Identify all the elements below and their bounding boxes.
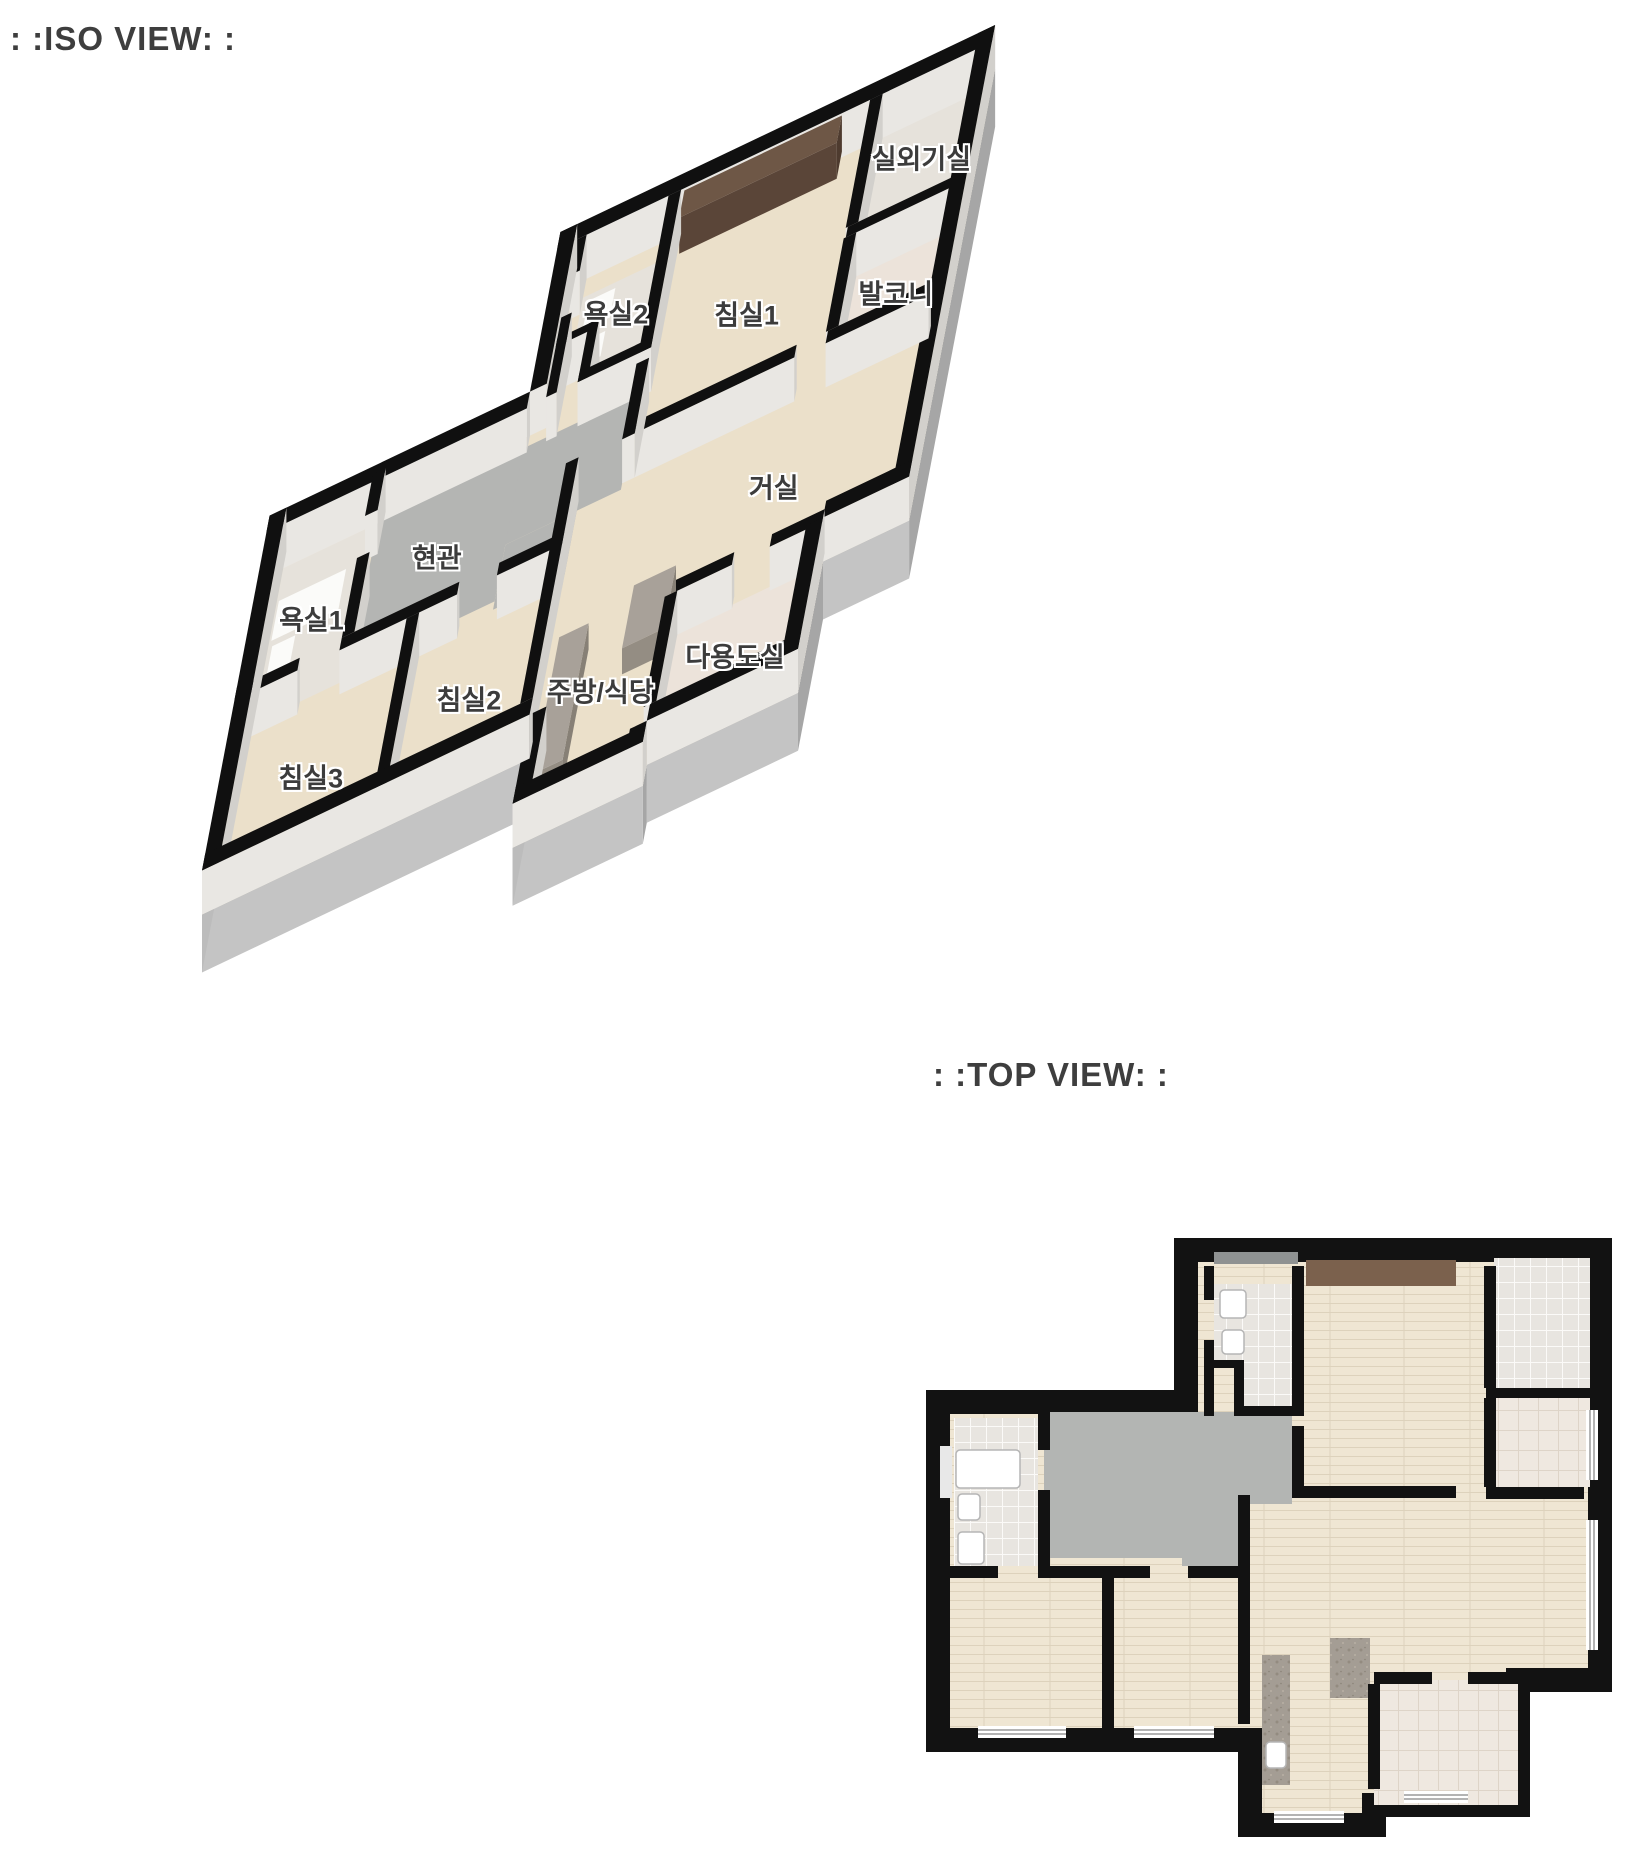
room-label-bedroom-1: 침실1 (714, 294, 779, 333)
room-label-bedroom-2: 침실2 (437, 679, 502, 718)
room-label-balcony: 발코니 (859, 272, 934, 311)
room-label-living-room: 거실 (749, 467, 799, 506)
top-view-title: : :TOP VIEW: : (933, 1056, 1169, 1094)
room-label-outdoor-unit-room: 실외기실 (872, 138, 971, 177)
floorplan-page: : :ISO VIEW: : 실외기실 발코니 침실1 욕실2 거실 주방/식당… (0, 0, 1630, 1849)
room-label-bathroom-1: 욕실1 (279, 598, 344, 637)
room-label-bathroom-2: 욕실2 (584, 293, 649, 332)
top-floorplan-rendering (926, 1238, 1630, 1854)
room-label-utility-room: 다용도실 (685, 635, 784, 674)
room-label-kitchen-dining: 주방/식당 (547, 671, 654, 710)
room-label-entrance: 현관 (412, 537, 462, 576)
room-label-bedroom-3: 침실3 (278, 757, 343, 796)
